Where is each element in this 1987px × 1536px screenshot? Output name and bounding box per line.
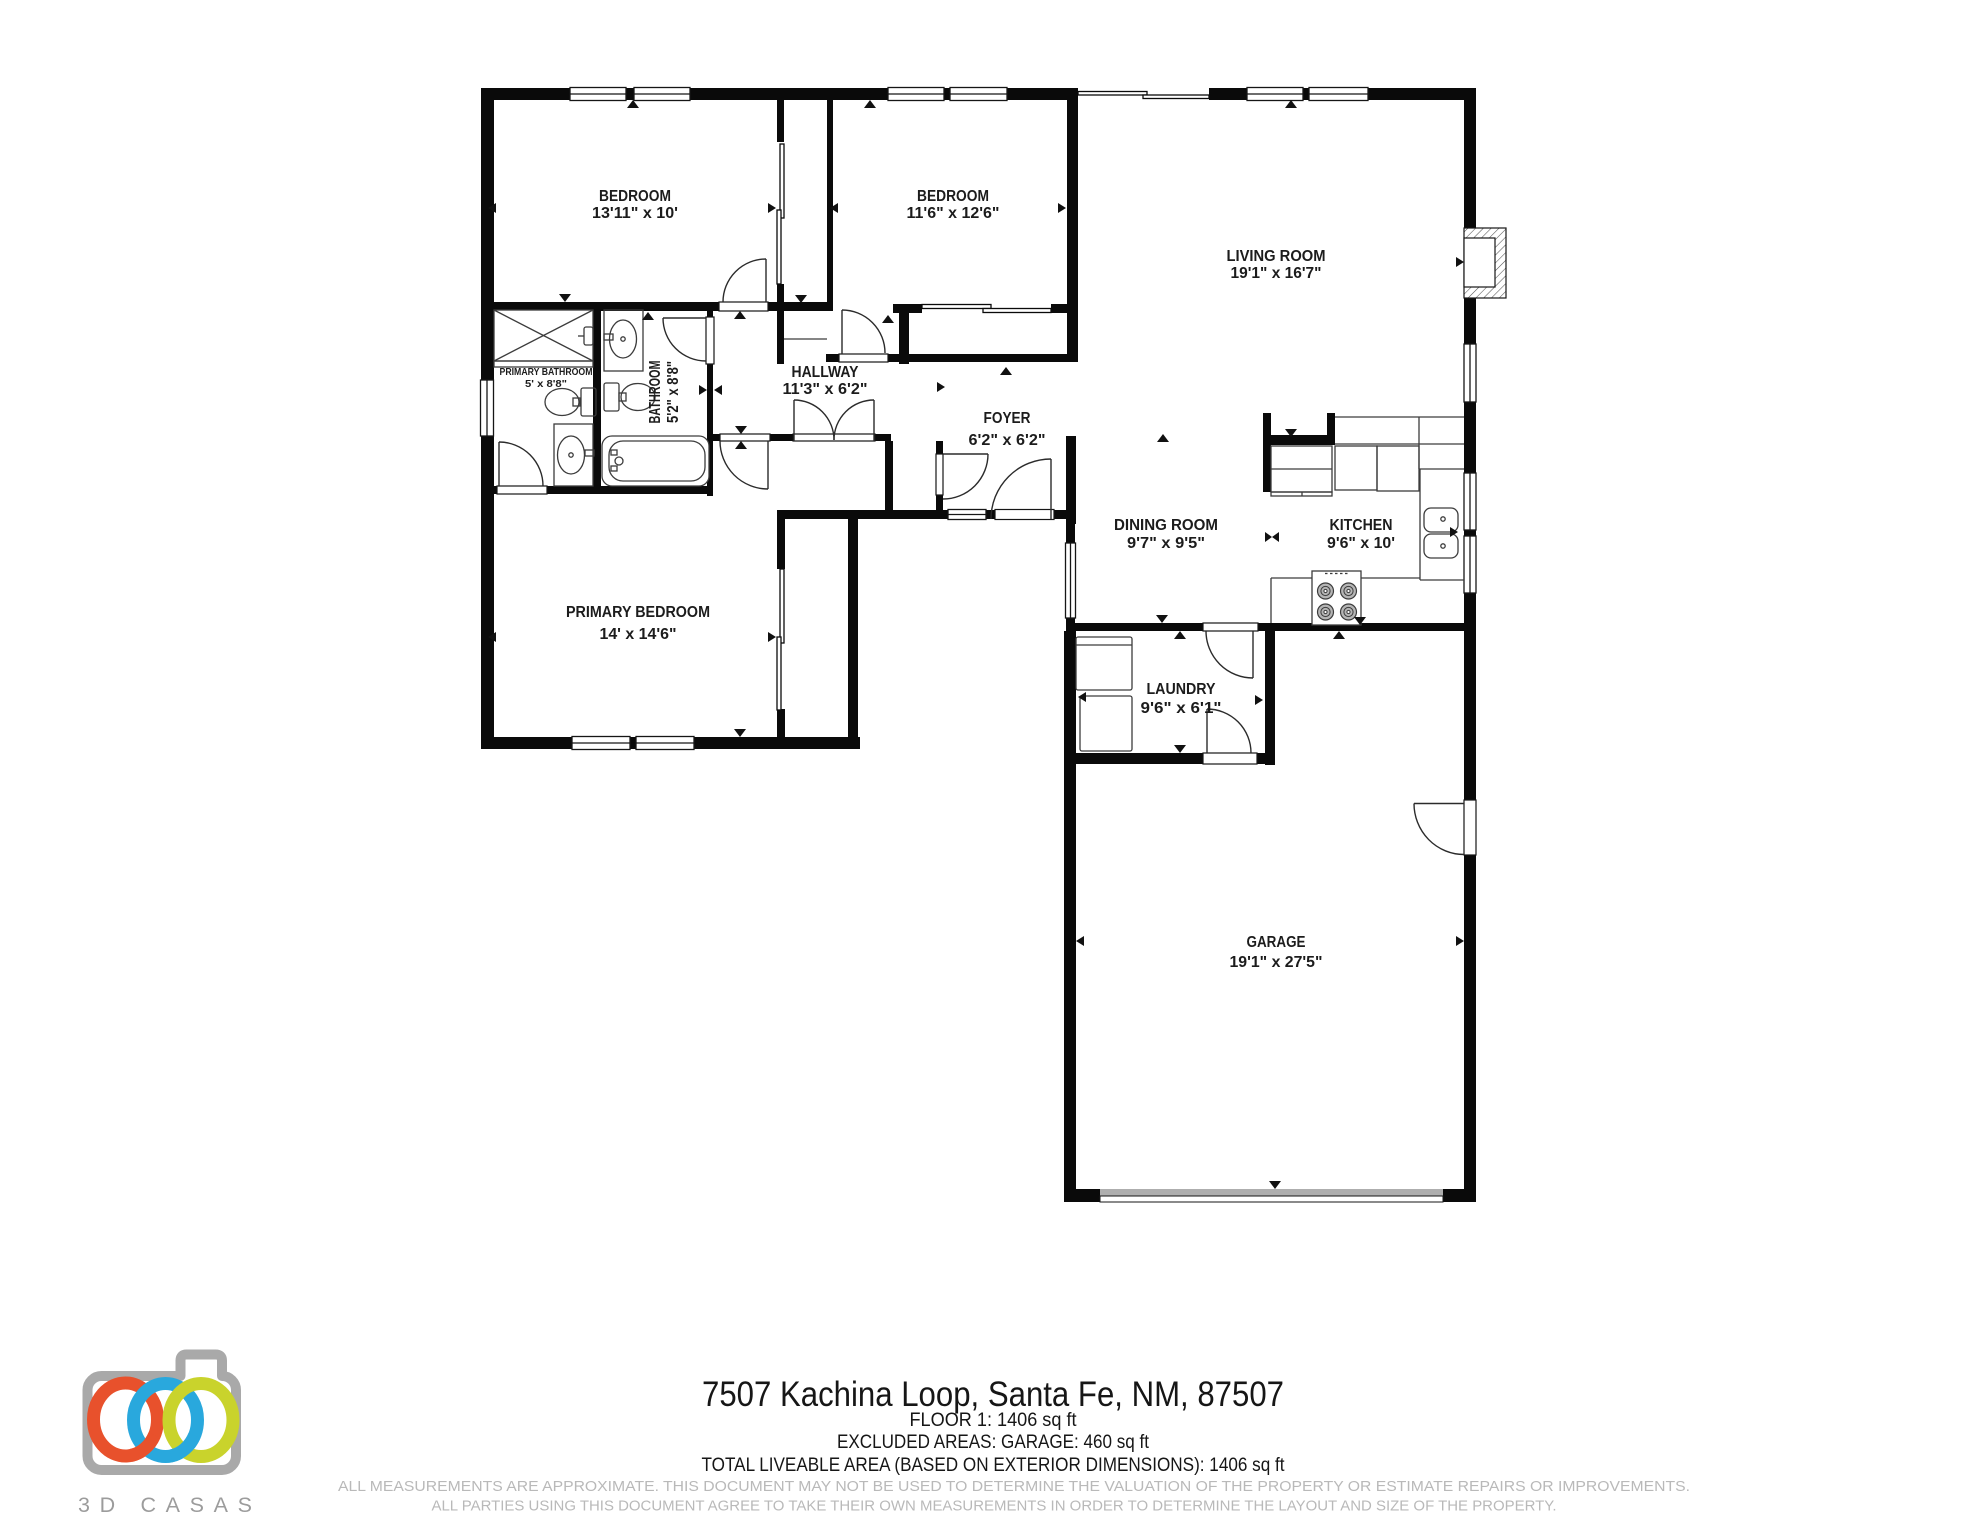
svg-text:9'6" x 6'1": 9'6" x 6'1" bbox=[1141, 700, 1222, 717]
svg-text:GARAGE: GARAGE bbox=[1247, 934, 1306, 951]
svg-text:TOTAL LIVEABLE AREA (BASED ON: TOTAL LIVEABLE AREA (BASED ON EXTERIOR D… bbox=[702, 1454, 1286, 1476]
svg-text:ALL MEASUREMENTS ARE APPROXIMA: ALL MEASUREMENTS ARE APPROXIMATE. THIS D… bbox=[338, 1478, 1690, 1495]
svg-text:LIVING ROOM: LIVING ROOM bbox=[1227, 248, 1326, 265]
svg-text:PRIMARY BATHROOM: PRIMARY BATHROOM bbox=[500, 367, 593, 378]
svg-text:19'1" x 16'7": 19'1" x 16'7" bbox=[1231, 265, 1322, 282]
svg-text:14' x 14'6": 14' x 14'6" bbox=[600, 626, 677, 643]
svg-text:9'7" x 9'5": 9'7" x 9'5" bbox=[1127, 535, 1205, 552]
svg-text:6'2" x 6'2": 6'2" x 6'2" bbox=[969, 432, 1046, 449]
svg-text:FOYER: FOYER bbox=[984, 410, 1031, 427]
svg-text:PRIMARY BEDROOM: PRIMARY BEDROOM bbox=[566, 604, 710, 621]
svg-text:13'11" x 10': 13'11" x 10' bbox=[592, 205, 678, 222]
svg-text:BATHROOM: BATHROOM bbox=[647, 361, 664, 424]
svg-text:5'2" x 8'8": 5'2" x 8'8" bbox=[665, 361, 682, 423]
svg-text:FLOOR 1: 1406 sq ft: FLOOR 1: 1406 sq ft bbox=[910, 1409, 1078, 1431]
svg-text:BEDROOM: BEDROOM bbox=[917, 188, 989, 205]
svg-text:11'6" x 12'6": 11'6" x 12'6" bbox=[907, 205, 1000, 222]
svg-text:HALLWAY: HALLWAY bbox=[792, 364, 860, 381]
svg-text:DINING ROOM: DINING ROOM bbox=[1114, 517, 1218, 534]
svg-text:11'3" x 6'2": 11'3" x 6'2" bbox=[783, 381, 868, 398]
svg-text:5' x 8'8": 5' x 8'8" bbox=[525, 379, 567, 390]
svg-text:19'1" x 27'5": 19'1" x 27'5" bbox=[1230, 954, 1323, 971]
svg-text:EXCLUDED AREAS: GARAGE: 460 sq: EXCLUDED AREAS: GARAGE: 460 sq ft bbox=[837, 1431, 1149, 1453]
svg-text:9'6" x 10': 9'6" x 10' bbox=[1327, 535, 1395, 552]
svg-text:KITCHEN: KITCHEN bbox=[1330, 517, 1393, 534]
svg-text:3D CASAS: 3D CASAS bbox=[78, 1493, 252, 1517]
svg-text:ALL PARTIES USING THIS DOCUMEN: ALL PARTIES USING THIS DOCUMENT AGREE TO… bbox=[432, 1498, 1557, 1515]
svg-text:BEDROOM: BEDROOM bbox=[599, 188, 671, 205]
svg-text:LAUNDRY: LAUNDRY bbox=[1147, 681, 1217, 698]
